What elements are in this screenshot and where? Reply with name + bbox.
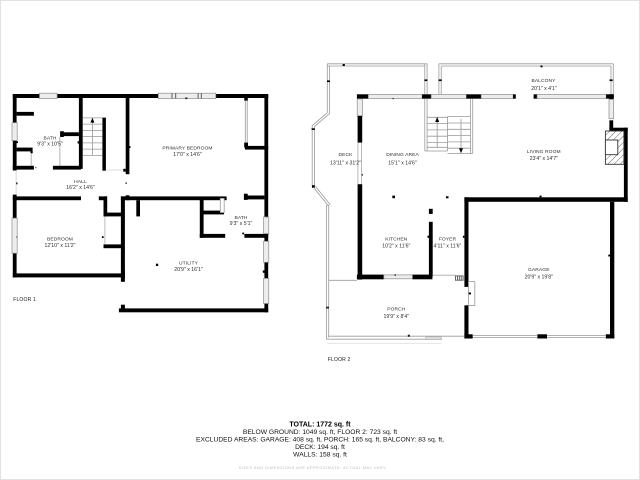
svg-text:BATH: BATH <box>43 135 56 141</box>
svg-text:17'0" x 14'6": 17'0" x 14'6" <box>173 152 202 158</box>
svg-text:13'11" x 31'2": 13'11" x 31'2" <box>330 160 361 166</box>
svg-text:PRIMARY BEDROOM: PRIMARY BEDROOM <box>162 146 212 152</box>
svg-text:KITCHEN: KITCHEN <box>385 236 408 242</box>
svg-text:DECK: DECK <box>339 152 354 158</box>
svg-text:9'3" x 10'5": 9'3" x 10'5" <box>37 142 63 148</box>
svg-text:UTILITY: UTILITY <box>179 261 199 267</box>
svg-text:PORCH: PORCH <box>387 307 406 313</box>
svg-text:10'2" x 11'6": 10'2" x 11'6" <box>382 243 410 249</box>
svg-text:DECK: 194 sq. ft: DECK: 194 sq. ft <box>295 444 345 451</box>
svg-text:HALL: HALL <box>74 179 87 185</box>
svg-text:FLOOR 1: FLOOR 1 <box>13 297 36 303</box>
svg-text:20'9" x 19'8": 20'9" x 19'8" <box>525 274 554 280</box>
svg-text:BEDROOM: BEDROOM <box>47 237 73 243</box>
svg-text:SIZES AND DIMENSIONS ARE APPRO: SIZES AND DIMENSIONS ARE APPROXIMATE, AC… <box>239 466 388 470</box>
svg-text:FOYER: FOYER <box>439 236 457 242</box>
svg-text:4'11" x 11'6": 4'11" x 11'6" <box>434 243 462 249</box>
svg-text:EXCLUDED AREAS: GARAGE: 408 sq: EXCLUDED AREAS: GARAGE: 408 sq. ft, PORC… <box>196 437 444 444</box>
svg-text:16'2" x 14'6": 16'2" x 14'6" <box>66 185 95 191</box>
svg-text:20'1" x 4'1": 20'1" x 4'1" <box>531 86 557 92</box>
svg-text:23'4" x 14'7": 23'4" x 14'7" <box>530 156 559 162</box>
svg-text:19'9" x 8'4": 19'9" x 8'4" <box>384 314 410 320</box>
svg-text:GARAGE: GARAGE <box>528 267 550 273</box>
svg-text:9'3" x 5'1": 9'3" x 5'1" <box>230 221 253 227</box>
svg-text:BALCONY: BALCONY <box>531 78 556 84</box>
svg-text:15'1" x 14'6": 15'1" x 14'6" <box>388 160 417 166</box>
svg-text:12'10" x 11'2": 12'10" x 11'2" <box>45 243 76 249</box>
svg-text:LIVING ROOM: LIVING ROOM <box>527 149 561 155</box>
svg-text:TOTAL: 1772 sq. ft: TOTAL: 1772 sq. ft <box>289 422 351 429</box>
svg-text:FLOOR 2: FLOOR 2 <box>328 357 351 363</box>
svg-text:BELOW GROUND: 1049 sq. ft, FLO: BELOW GROUND: 1049 sq. ft, FLOOR 2: 723 … <box>243 429 397 436</box>
svg-text:WALLS: 158 sq. ft: WALLS: 158 sq. ft <box>293 452 347 459</box>
svg-text:DINING AREA: DINING AREA <box>386 152 419 158</box>
svg-text:20'9" x 16'1": 20'9" x 16'1" <box>174 267 203 273</box>
